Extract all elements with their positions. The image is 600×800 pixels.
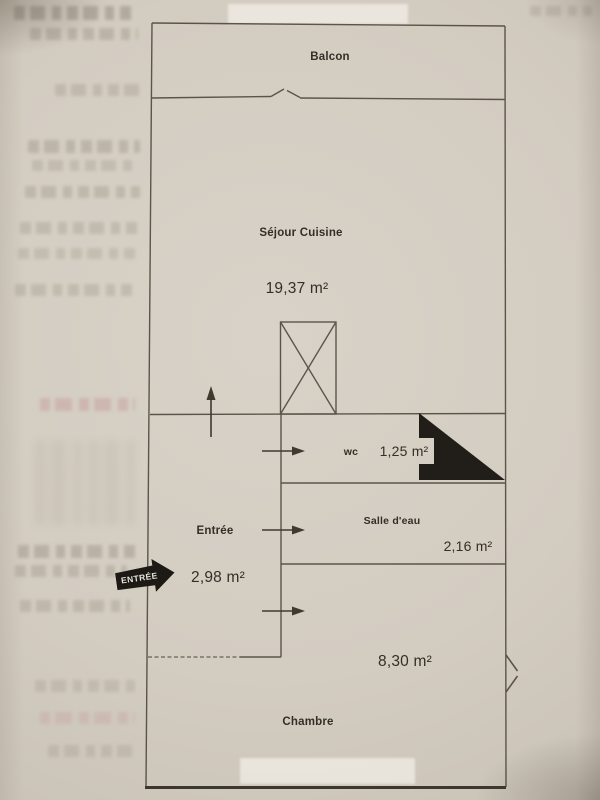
room-label-salledeau: Salle d'eau — [364, 515, 421, 527]
wall-left — [146, 23, 152, 787]
floorplan-lines — [0, 0, 600, 800]
wall-balcony — [151, 97, 271, 99]
room-label-sejour: Séjour Cuisine — [259, 227, 342, 239]
wall-balcony — [300, 98, 506, 100]
wall-break-marker — [506, 655, 518, 671]
room-label-balcon: Balcon — [310, 51, 350, 63]
wall-right — [505, 26, 506, 787]
room-label-wc: wc — [344, 446, 358, 458]
door-arrow-right-head — [292, 447, 305, 456]
wall-break-marker — [506, 676, 518, 692]
door-arrow-right-head — [292, 607, 305, 616]
wall-top — [152, 23, 505, 26]
room-area-chambre: 8,30 m² — [378, 653, 432, 671]
room-label-entree: Entrée — [197, 525, 234, 537]
room-area-salledeau: 2,16 m² — [444, 538, 493, 554]
door-arrow-up-head — [207, 386, 216, 400]
balcony-door-notch — [287, 91, 300, 98]
room-area-sejour: 19,37 m² — [266, 280, 329, 298]
room-area-entree: 2,98 m² — [191, 569, 245, 587]
floorplan-photo: Balcon Séjour Cuisine 19,37 m² wc 1,25 m… — [0, 0, 600, 800]
room-label-chambre: Chambre — [282, 716, 333, 728]
door-arrow-right-head — [292, 526, 305, 535]
balcony-door-notch — [271, 89, 284, 97]
room-area-wc: 1,25 m² — [380, 443, 429, 459]
diagonal-wall-triangle — [419, 413, 505, 480]
